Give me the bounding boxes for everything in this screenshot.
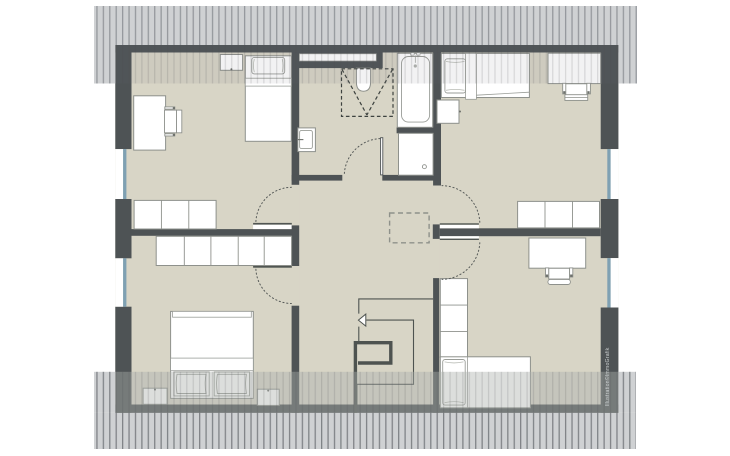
svg-text:Illustration©ImmoGrafik: Illustration©ImmoGrafik	[604, 347, 611, 406]
